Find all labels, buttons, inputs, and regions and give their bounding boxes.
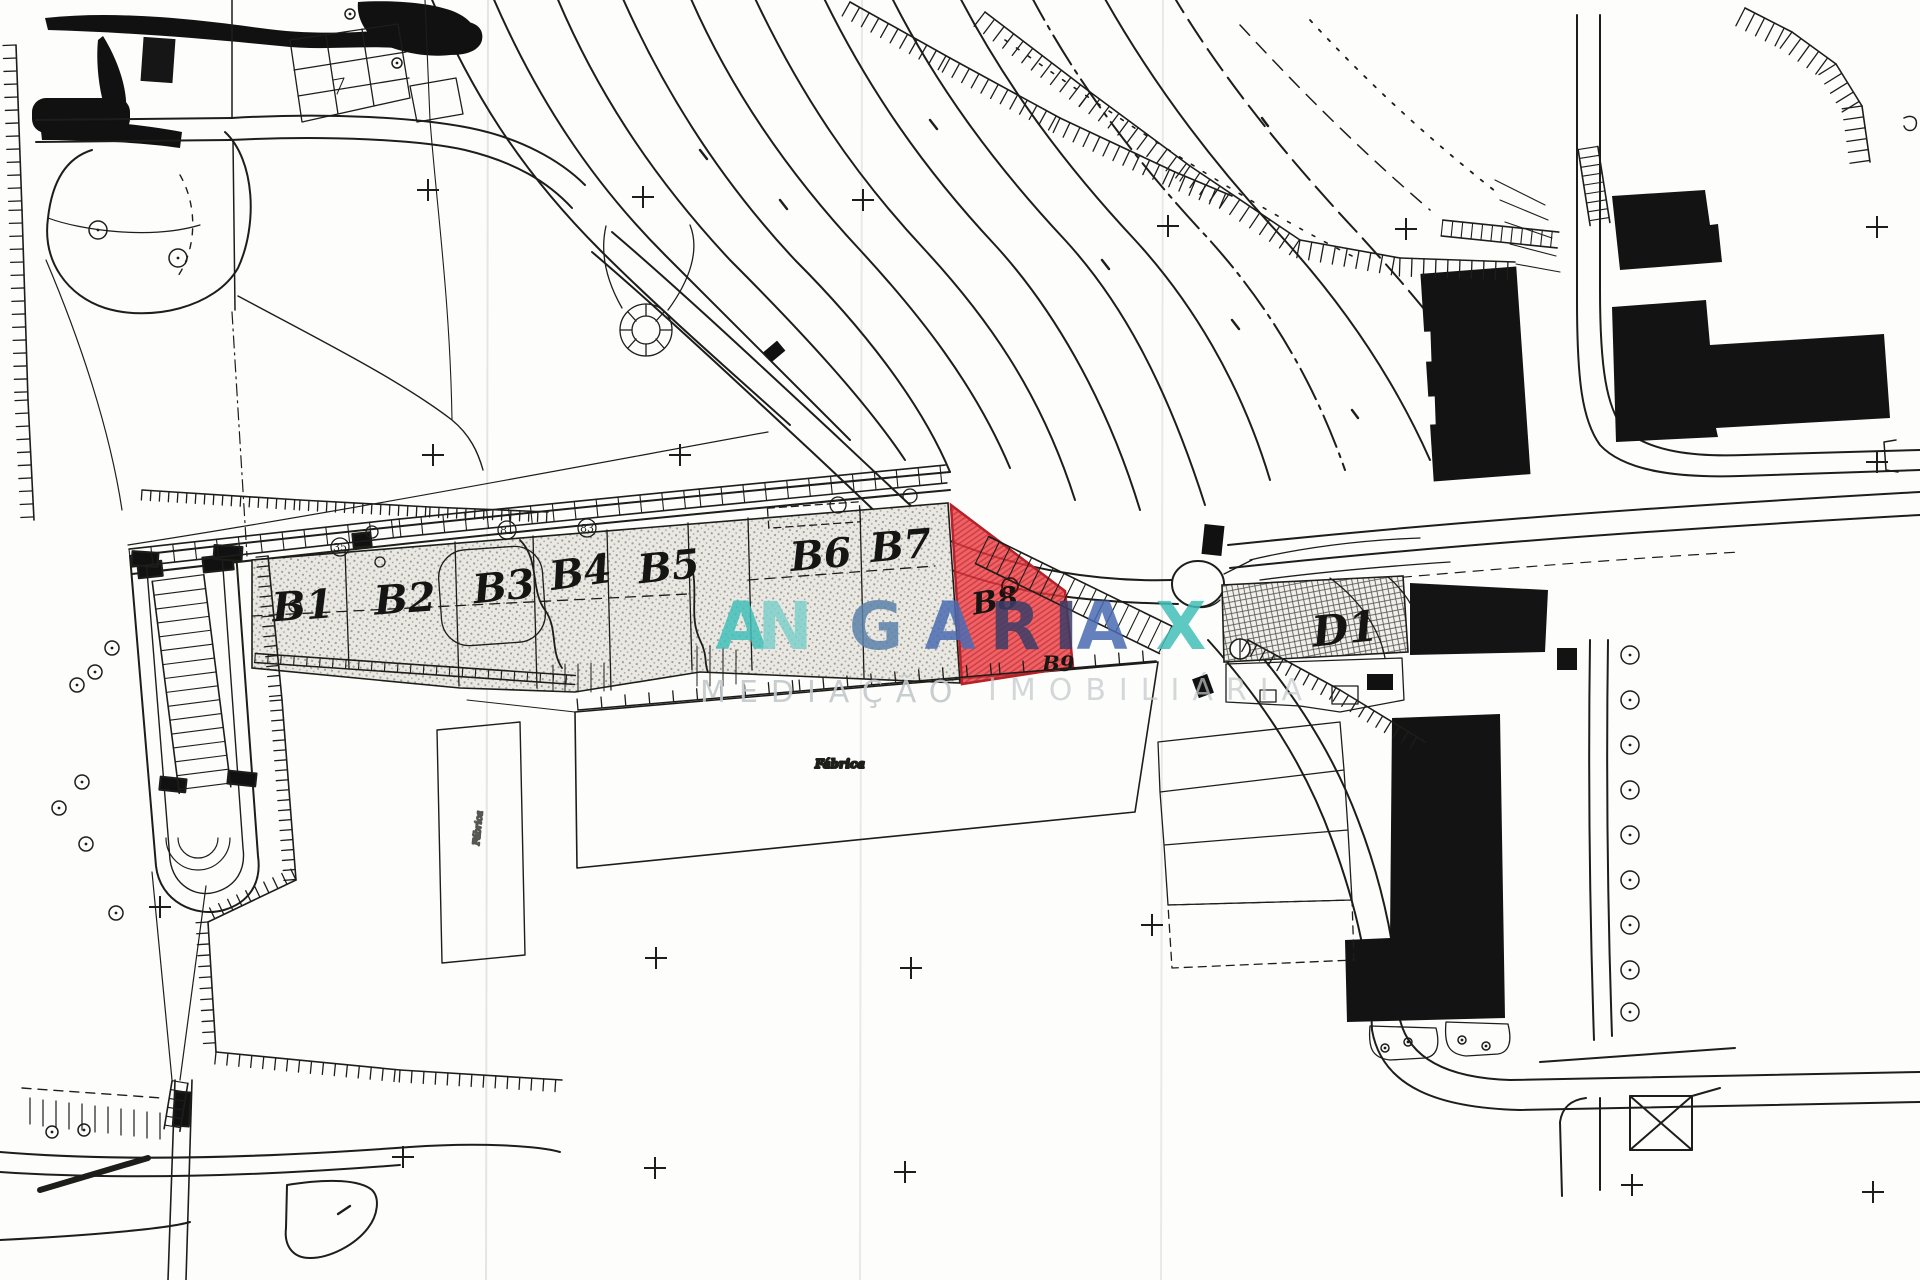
site-plan-canvas: 35 81 83 B1 B2 B3 B4 B5 B6 B7 bbox=[0, 0, 1920, 1280]
survey-cross bbox=[1866, 216, 1888, 238]
watermark-tagline-word1: MEDIAÇÃO bbox=[700, 674, 965, 710]
building-vertical-big bbox=[1345, 714, 1505, 1022]
factory-label-small: Fábrica bbox=[471, 810, 486, 846]
survey-cross bbox=[1621, 1174, 1643, 1196]
park-area bbox=[32, 0, 585, 556]
lot-label-b2: B2 bbox=[371, 573, 437, 624]
lot-label-b4: B4 bbox=[546, 545, 615, 600]
bottom-left-roads bbox=[0, 1088, 560, 1258]
survey-cross bbox=[632, 186, 654, 208]
spiral-ramp bbox=[604, 225, 694, 356]
building-tall bbox=[1420, 266, 1530, 481]
ramp-structure bbox=[40, 545, 259, 1280]
contour-lines bbox=[430, 0, 1520, 510]
watermark-brand: ANGARIAX bbox=[715, 588, 1206, 665]
lot-label-b1: B1 bbox=[269, 580, 335, 631]
scanned-site-plan: 35 81 83 B1 B2 B3 B4 B5 B6 B7 bbox=[0, 0, 1920, 1280]
survey-cross bbox=[1862, 1181, 1884, 1203]
survey-cross bbox=[422, 444, 444, 466]
lot-label-b7: B7 bbox=[867, 520, 934, 572]
survey-cross bbox=[1395, 218, 1417, 240]
d1-label: D1 bbox=[1309, 601, 1380, 657]
lot-label-b6: B6 bbox=[787, 529, 853, 581]
survey-cross bbox=[644, 1157, 666, 1179]
watermark-tagline-word2: IMOBILIÁRIA bbox=[988, 672, 1315, 708]
survey-cross bbox=[900, 957, 922, 979]
survey-cross bbox=[645, 947, 667, 969]
survey-cross bbox=[1141, 914, 1163, 936]
building-l-shape bbox=[1612, 300, 1890, 442]
survey-cross bbox=[149, 896, 171, 918]
lot-label-b5: B5 bbox=[635, 540, 702, 593]
lot-label-b3: B3 bbox=[470, 560, 537, 613]
traffic-island bbox=[286, 1181, 377, 1258]
factory-label: Fábrica bbox=[814, 757, 865, 771]
survey-cross bbox=[1157, 215, 1179, 237]
survey-cross bbox=[894, 1161, 916, 1183]
building-top-right bbox=[1612, 190, 1722, 270]
survey-cross bbox=[852, 189, 874, 211]
lot-marker: 83 bbox=[580, 522, 594, 535]
black-building-near-d1 bbox=[1410, 583, 1548, 655]
